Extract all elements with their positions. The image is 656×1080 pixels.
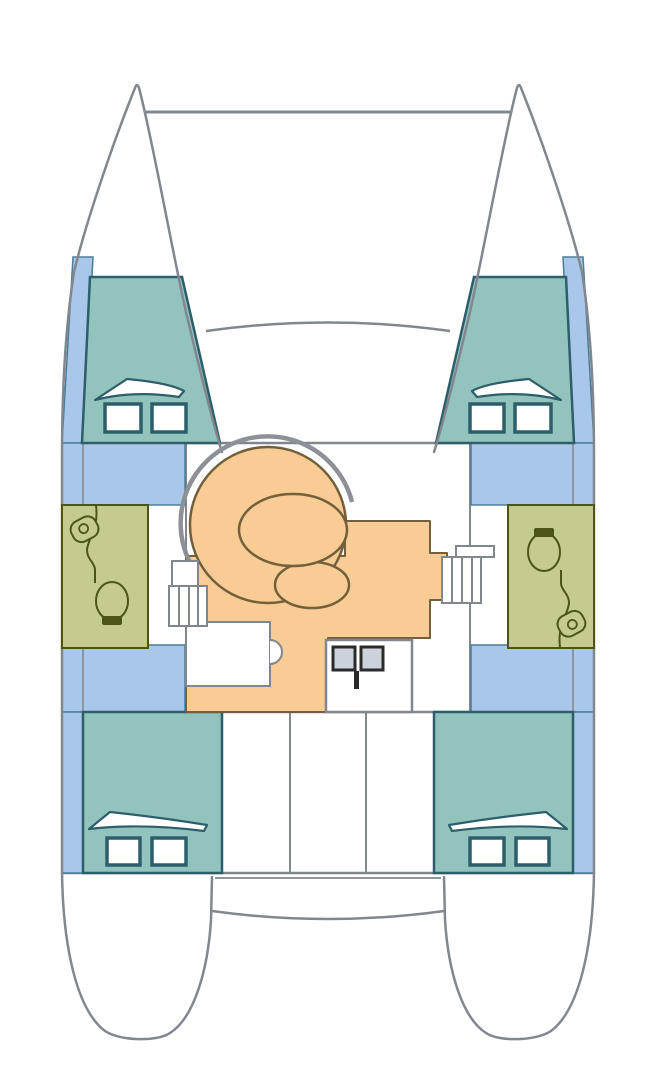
toilet-bowl-port xyxy=(96,582,128,620)
steps-rail-starboard xyxy=(456,546,494,557)
head-port xyxy=(62,505,148,648)
stool-seat xyxy=(275,562,349,608)
port-walkway-forward xyxy=(62,443,185,505)
salon-group xyxy=(181,436,447,712)
forward-cabin-window-port-1 xyxy=(105,404,141,432)
toilet-base-port xyxy=(102,616,122,625)
deck-plan-drawing xyxy=(0,0,656,1080)
steps-landing-port xyxy=(172,561,198,586)
nav-desk xyxy=(186,622,270,686)
companionway-steps-starboard xyxy=(442,546,494,603)
galley-sink-left xyxy=(333,647,355,670)
galley-faucet xyxy=(354,671,359,689)
port-walkway-aft xyxy=(62,645,185,712)
port-side-deck-strip xyxy=(62,712,83,873)
coachroof-front-curve xyxy=(206,323,450,332)
aft-cabin-window-port-1 xyxy=(107,838,140,865)
aft-cabin-window-port-2 xyxy=(152,838,186,865)
catamaran-deck-plan xyxy=(0,0,656,1080)
aft-bridgedeck-curve xyxy=(212,911,444,919)
head-starboard xyxy=(508,505,594,648)
salon-table xyxy=(239,494,347,566)
galley-sink-right xyxy=(361,647,383,670)
forward-cabin-window-port-2 xyxy=(152,404,186,432)
